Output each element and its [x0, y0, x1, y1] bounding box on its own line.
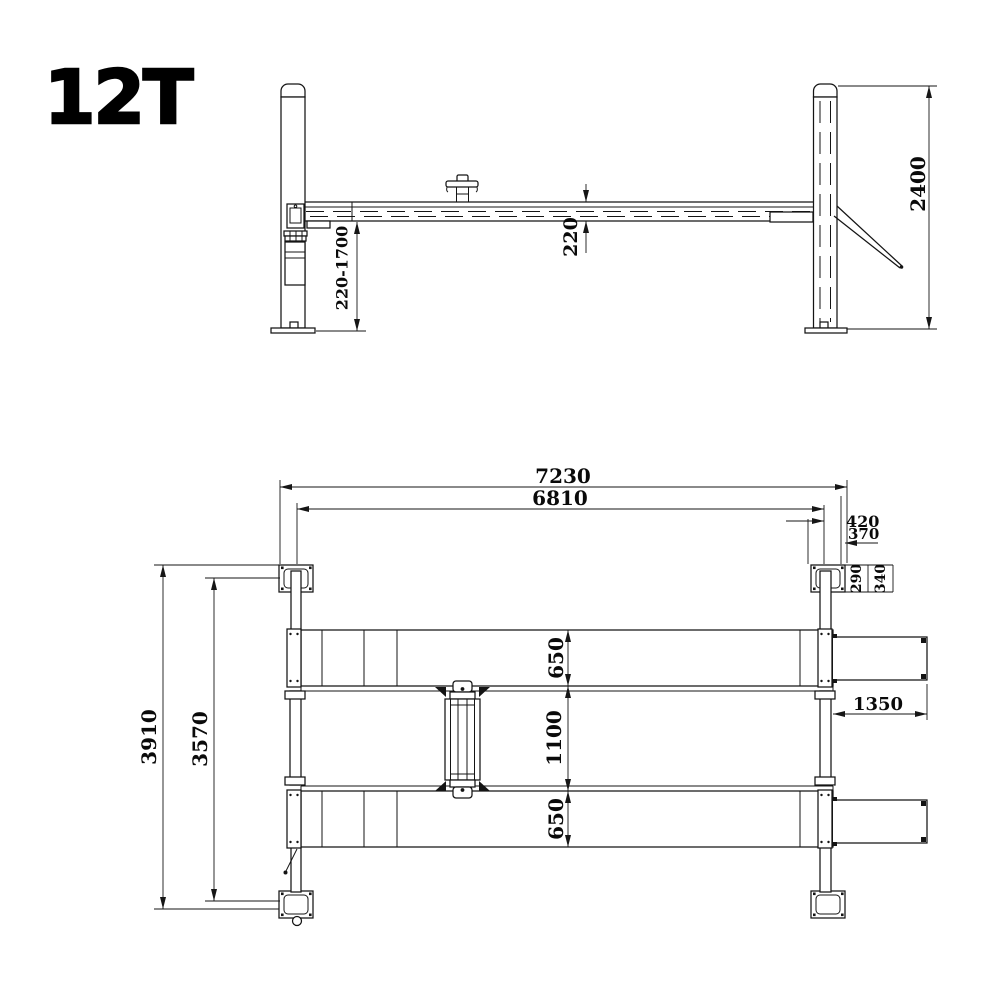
- dim-label-inner-width: 3570: [188, 711, 212, 767]
- extension-ramp-front: [833, 634, 927, 683]
- carriage-front-right: [818, 629, 832, 687]
- runway-left-bracket: [307, 221, 330, 228]
- dim-label-lift-height-range: 220-1700: [333, 226, 352, 311]
- cross-tube-left: [285, 691, 305, 785]
- dim-column-height: 2400: [838, 86, 937, 329]
- dim-label-runway-thickness: 220: [560, 217, 582, 257]
- control-box: [284, 204, 307, 285]
- dim-inner-length: 6810: [297, 486, 824, 564]
- runway-side: [305, 202, 813, 228]
- approach-ramp-side: [834, 206, 903, 269]
- dim-label-column-height: 2400: [906, 156, 930, 212]
- rolling-jack-side: [446, 175, 478, 202]
- plan-view: 7230 6810 420 370 290 340: [137, 464, 927, 926]
- dim-370: 370: [845, 525, 879, 543]
- four-post-lift-drawing: 12T: [0, 0, 994, 1000]
- dim-runway-widths: 650 1100 650: [542, 630, 568, 847]
- dim-overall-length: 7230: [280, 464, 847, 564]
- extension-ramp-rear: [833, 797, 927, 846]
- dim-label-overall-length: 7230: [535, 464, 591, 488]
- jack-clamp: [435, 687, 446, 697]
- right-column: [805, 84, 847, 333]
- cross-tube-right: [815, 691, 835, 785]
- dim-label-runway-width-front: 650: [544, 637, 568, 679]
- jack-clamp: [479, 687, 490, 697]
- post-rear-right: [811, 891, 845, 918]
- cross-beam-side: [770, 212, 813, 222]
- capacity-label: 12T: [44, 55, 194, 141]
- dim-label-290: 290: [849, 564, 865, 593]
- rolling-jack-plan: [435, 681, 490, 798]
- dim-lift-height-range: 220-1700: [316, 222, 366, 331]
- side-view: 220-1700 220 2400: [271, 84, 937, 333]
- dim-inner-width: 3570: [188, 578, 280, 901]
- dim-ramp-length: 1350: [833, 684, 927, 720]
- left-column: [271, 84, 315, 333]
- dim-label-ramp-length: 1350: [853, 694, 903, 715]
- post-rear-left: [279, 891, 313, 926]
- dim-label-runway-gap: 1100: [542, 710, 566, 766]
- carriage-rear-right: [818, 790, 832, 848]
- dim-label-inner-length: 6810: [532, 486, 588, 510]
- dim-label-overall-width: 3910: [137, 709, 161, 765]
- carriage-rear-left: [287, 790, 301, 848]
- technical-drawing-page: 12T: [0, 0, 994, 1000]
- dim-label-370: 370: [848, 525, 879, 543]
- dim-290-340: 290 340: [845, 564, 893, 593]
- power-unit: [285, 242, 305, 285]
- dim-label-runway-width-rear: 650: [544, 798, 568, 840]
- caster-foot: [293, 917, 302, 926]
- dim-label-340: 340: [873, 564, 889, 593]
- carriage-front-left: [287, 629, 301, 687]
